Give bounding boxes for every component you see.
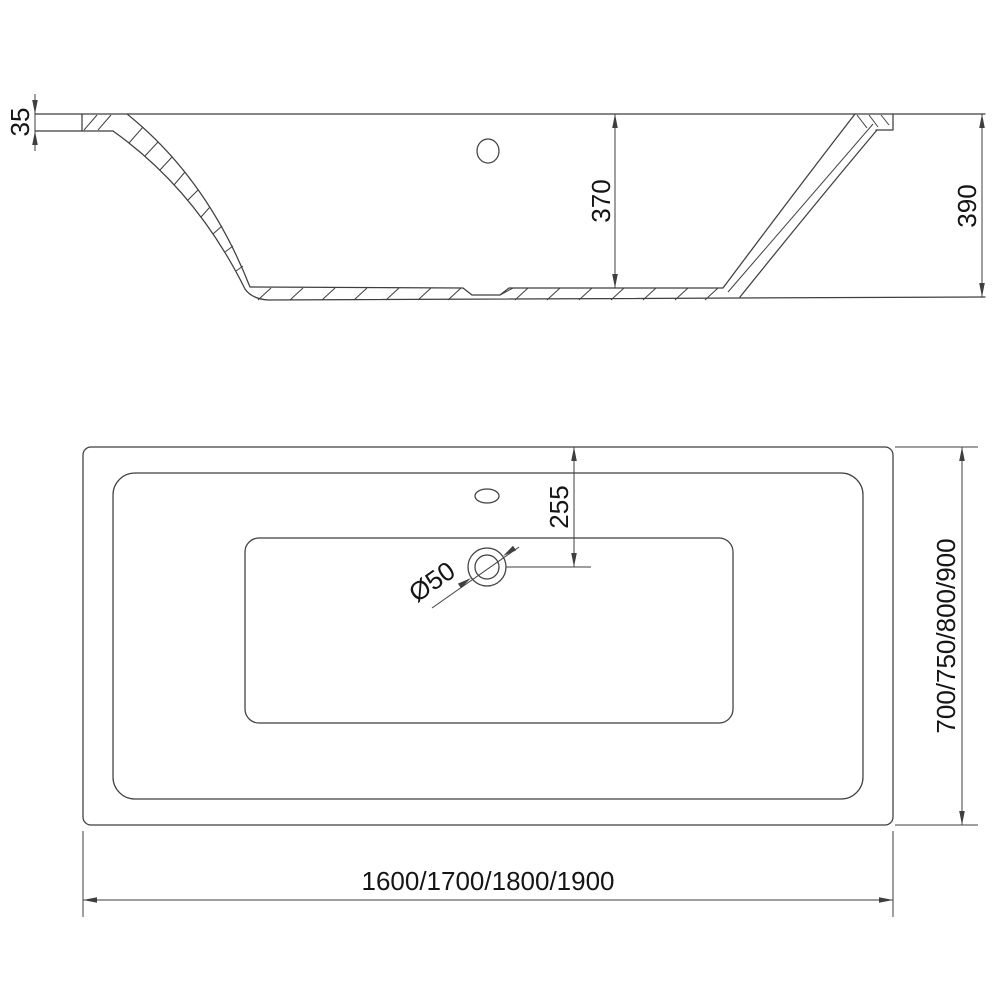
arrowhead-icon <box>83 897 97 903</box>
rim-right-edge <box>876 114 893 130</box>
overflow-hole-icon <box>477 139 499 163</box>
arrowhead-icon <box>959 811 965 825</box>
tub-basin-floor-edge <box>245 538 733 723</box>
dimension-inner-depth: 370 <box>586 114 618 288</box>
dimension-drain-offset: 255 <box>506 447 591 567</box>
drain-recess-edge <box>500 288 513 295</box>
arrowhead-icon <box>571 553 577 567</box>
arrowhead-icon <box>571 447 577 461</box>
dim-label-drain-offset: 255 <box>544 485 574 528</box>
side-section-view: 35 370 390 <box>5 94 985 300</box>
overflow-hole-plan-icon <box>475 489 499 503</box>
rim-hatch-left <box>84 115 111 130</box>
right-wall-inner-profile <box>723 114 855 288</box>
tub-rim-inner-edge <box>113 473 863 799</box>
dimension-overall-width: 700/750/800/900 <box>895 447 978 825</box>
arrowhead-icon <box>458 576 473 589</box>
rim-hatch-right <box>857 115 889 128</box>
right-wall-outer-profile <box>740 130 877 297</box>
dimension-rim-thickness: 35 <box>5 94 38 151</box>
arrowhead-icon <box>612 274 618 288</box>
dim-label-inner-depth: 370 <box>586 179 616 222</box>
bathtub-technical-drawing: 35 370 390 Ø50 <box>0 0 1000 1000</box>
arrowhead-icon <box>879 897 893 903</box>
top-plan-view: Ø50 255 1600/1700/1800/1900 700/750/ <box>83 447 978 917</box>
drain-outer-circle <box>468 548 506 586</box>
arrowhead-icon <box>501 546 516 559</box>
tub-outer-edge <box>83 447 893 825</box>
dimension-overall-length: 1600/1700/1800/1900 <box>83 831 893 917</box>
dim-label-overall-width: 700/750/800/900 <box>931 538 961 733</box>
arrowhead-icon <box>979 283 985 297</box>
arrowhead-icon <box>979 114 985 128</box>
dim-label-overall-length: 1600/1700/1800/1900 <box>361 866 614 896</box>
arrowhead-icon <box>612 114 618 128</box>
dimension-overall-height: 390 <box>952 114 985 297</box>
dim-label-overall-height: 390 <box>952 184 982 227</box>
dim-label-rim-thickness: 35 <box>5 108 35 137</box>
dim-label-drain-diameter: Ø50 <box>403 555 460 608</box>
arrowhead-icon <box>959 447 965 461</box>
left-wall-inner-profile <box>127 114 723 295</box>
drawing-canvas: 35 370 390 Ø50 <box>0 0 1000 1000</box>
right-wall-middle-line <box>728 124 873 292</box>
